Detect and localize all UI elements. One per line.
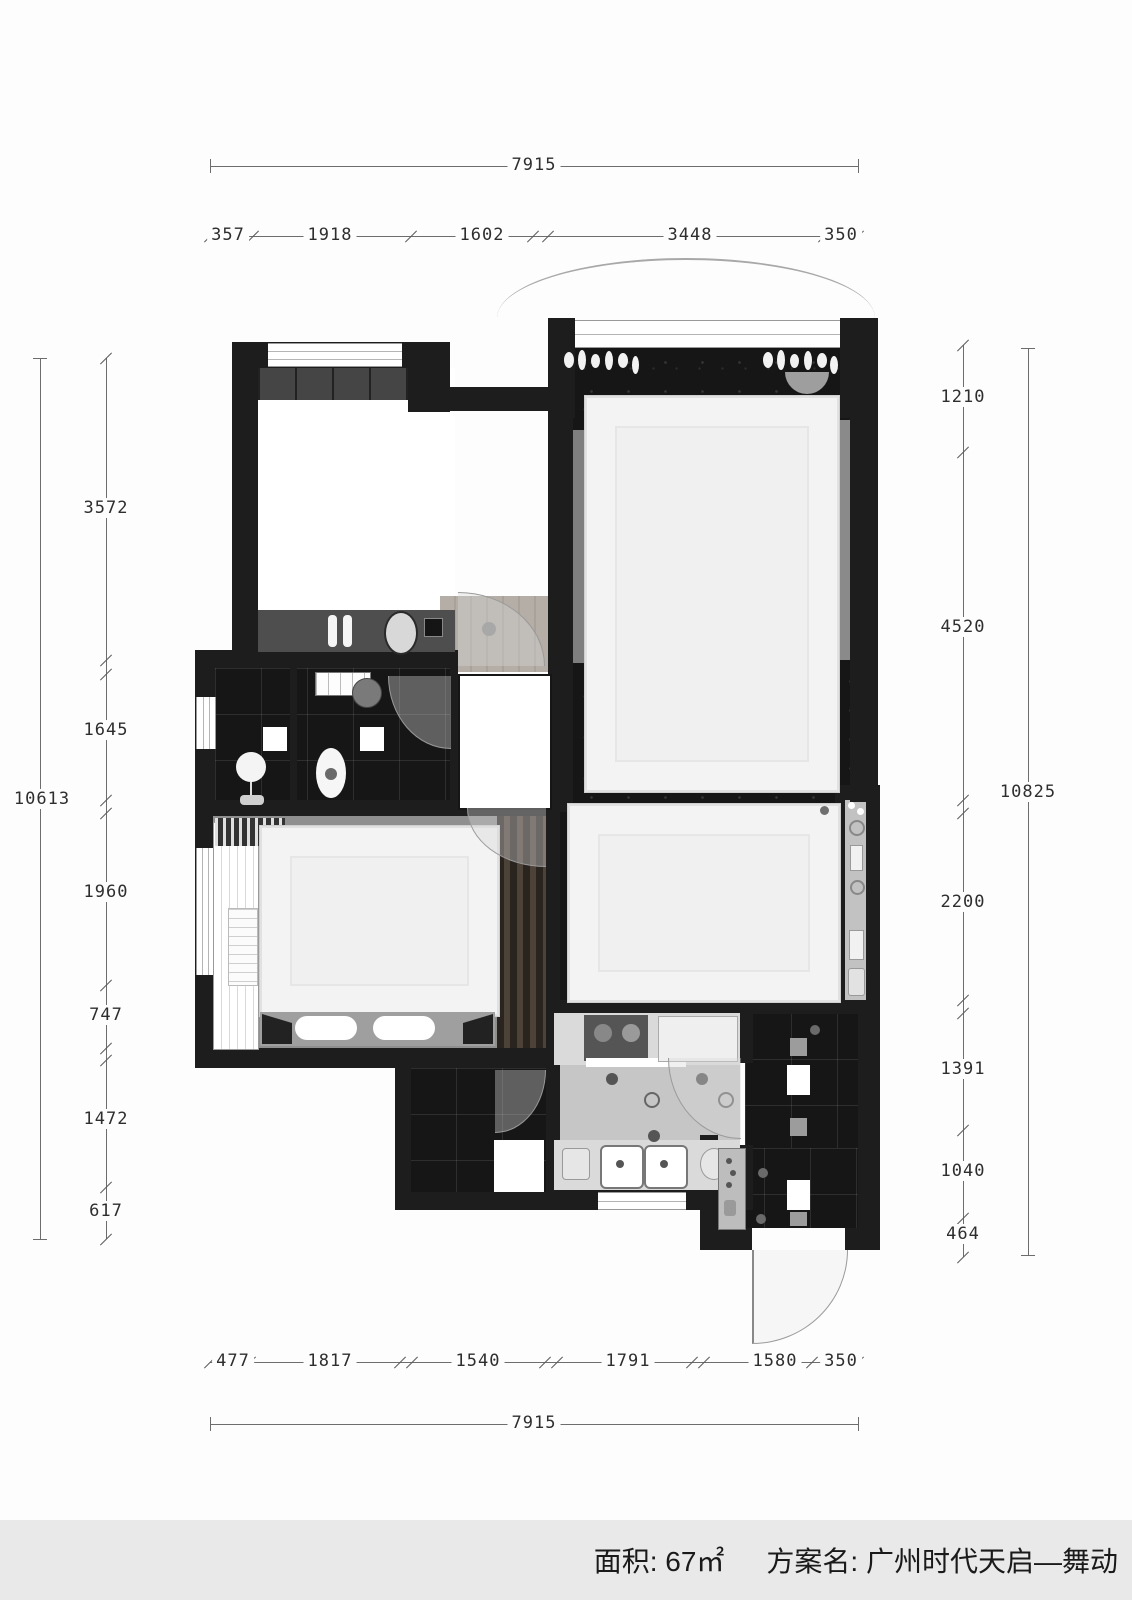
shoe-item (730, 1170, 736, 1176)
floor-dot (758, 1168, 768, 1178)
drawer-unit (228, 908, 258, 986)
burner-icon (594, 1024, 612, 1042)
pillow-icon (373, 1016, 435, 1040)
dim-label: 350 (820, 1351, 862, 1371)
dim-label: 1391 (937, 1059, 990, 1079)
burner-icon (622, 1024, 640, 1042)
dim-label: 4520 (937, 617, 990, 637)
floor-dot (756, 1214, 766, 1224)
wall-segment (395, 1192, 560, 1210)
window-bedroom-left (196, 848, 214, 975)
balcony-arc (497, 258, 875, 318)
plan-text: 方案名: 广州时代天启—舞动 (766, 1540, 1118, 1580)
dim-label: 477 (212, 1351, 254, 1371)
wall-segment (450, 668, 458, 812)
wall-segment (195, 650, 458, 668)
bed-right (568, 804, 840, 1002)
wall-segment (740, 1013, 753, 1063)
door-arc-entry (752, 1250, 848, 1344)
wall-segment (395, 1068, 411, 1208)
area-value: 67㎡ (665, 1546, 724, 1577)
shower-tray-icon (263, 727, 287, 751)
wall-segment (858, 1013, 880, 1250)
wall-segment (195, 1048, 560, 1068)
dim-tick (1021, 1255, 1035, 1256)
dim-label-top-total: 7915 (508, 155, 561, 175)
floor-inlay (787, 1180, 810, 1210)
balcony-item (848, 802, 855, 809)
wardrobe-top (258, 368, 408, 400)
dim-label: 2200 (937, 892, 990, 912)
dim-label-right-total: 10825 (996, 782, 1060, 802)
dim-label: 1210 (937, 387, 990, 407)
dim-label: 1918 (304, 225, 357, 245)
dim-tick (210, 1417, 211, 1431)
window-bathroom (196, 697, 216, 749)
drain-icon (660, 1160, 668, 1168)
plan-name: 广州时代天启—舞动 (866, 1546, 1118, 1577)
balcony-item (857, 808, 864, 815)
dim-label: 1791 (602, 1351, 655, 1371)
hall-door-panel (458, 674, 552, 810)
floor-inlay (790, 1038, 807, 1056)
mirror-icon (384, 611, 418, 655)
floor-dot (606, 1073, 618, 1085)
dim-tick (858, 1417, 859, 1431)
area-label: 面积: (594, 1546, 658, 1577)
dim-label: 3448 (664, 225, 717, 245)
shoe-cabinet (718, 1148, 746, 1230)
living-room-rug (585, 396, 839, 792)
wall-segment (845, 1228, 880, 1250)
wall-segment (835, 1000, 880, 1014)
sink-base-icon (240, 795, 264, 805)
title-bar: 面积: 67㎡ 方案名: 广州时代天启—舞动 (0, 1520, 1132, 1600)
wall-segment (290, 668, 297, 800)
floorplan-page: 7915 357 1918 1602 3448 350 477 1817 154… (0, 0, 1132, 1600)
pillow-icon (295, 1016, 357, 1040)
window-living-room (575, 320, 840, 348)
floor-dot (810, 1025, 820, 1035)
floor-inlay (790, 1118, 807, 1136)
floor-inlay (790, 1212, 807, 1226)
wall-segment (232, 342, 258, 662)
figurine-icon (343, 615, 352, 647)
wall-segment (866, 788, 880, 1030)
dim-label-left-total: 10613 (10, 789, 74, 809)
shower-tray-icon (360, 727, 384, 751)
washer-icon (849, 930, 864, 960)
dim-label: 3572 (80, 498, 133, 518)
dim-label: 1540 (452, 1351, 505, 1371)
dim-label: 1472 (80, 1109, 133, 1129)
pedestal-sink-icon (236, 752, 266, 782)
dim-label: 1040 (937, 1161, 990, 1181)
balcony-item (849, 820, 865, 836)
wall-segment (700, 1228, 752, 1250)
dim-label: 1580 (749, 1351, 802, 1371)
dim-label: 1602 (456, 225, 509, 245)
balcony-item (850, 845, 863, 871)
wall-segment (548, 1000, 880, 1014)
dim-label: 1960 (80, 882, 133, 902)
appliance-icon (494, 1140, 544, 1192)
curtain-strip-right (838, 420, 850, 660)
dim-label-bottom-total: 7915 (508, 1413, 561, 1433)
dim-tick (33, 358, 47, 359)
drain-icon (616, 1160, 624, 1168)
bed-left (260, 826, 499, 1016)
balcony-item (848, 968, 865, 996)
basin-icon (352, 678, 382, 708)
dim-label: 747 (85, 1005, 127, 1025)
figurine-icon (328, 615, 337, 647)
dim-tick (33, 1239, 47, 1240)
dim-label: 464 (942, 1224, 984, 1244)
dim-label: 357 (207, 225, 249, 245)
area-text: 面积: 67㎡ (594, 1540, 725, 1580)
dim-label: 350 (820, 225, 862, 245)
floor-ring (644, 1092, 660, 1108)
dot-marker (820, 806, 829, 815)
shoe-item (724, 1200, 736, 1216)
dim-tick (1021, 348, 1035, 349)
floor-dot (648, 1130, 660, 1142)
cutting-board-icon (562, 1148, 590, 1180)
dim-tick (210, 159, 211, 173)
wall-segment (850, 418, 878, 802)
window-top-left (268, 343, 402, 367)
plan-label: 方案名: (766, 1546, 858, 1577)
balcony-item (850, 880, 865, 895)
dim-label: 617 (85, 1201, 127, 1221)
kitchen-cabinet (658, 1016, 738, 1062)
wall-segment (408, 387, 558, 411)
dim-label: 1645 (80, 720, 133, 740)
dim-label: 1817 (304, 1351, 357, 1371)
stool-icon (424, 618, 443, 637)
dim-tick (858, 159, 859, 173)
window-kitchen (598, 1192, 686, 1210)
floor-inlay (787, 1065, 810, 1095)
shoe-item (726, 1158, 732, 1164)
shoe-item (726, 1182, 732, 1188)
toilet-drain-icon (325, 768, 337, 780)
